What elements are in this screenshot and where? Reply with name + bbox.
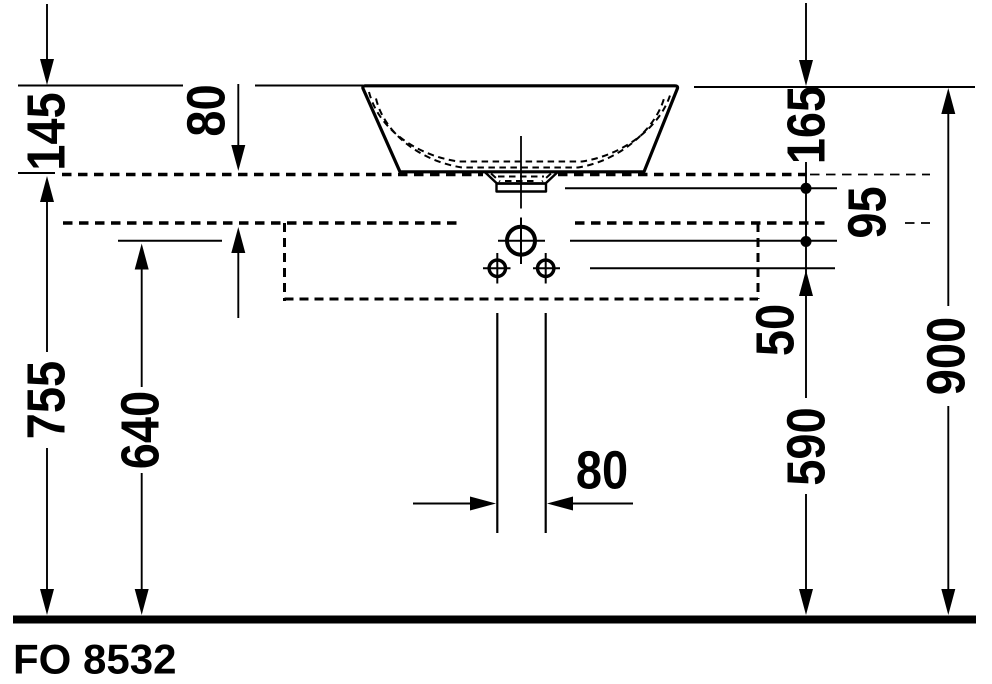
arrowhead-down-165 [799, 60, 813, 86]
arrowhead-up-640 [135, 244, 149, 270]
arrowhead-down-590-floor [799, 589, 813, 615]
technical-drawing-page: 145 80 755 640 165 95 50 590 900 80 FO 8… [0, 0, 992, 684]
dimension-labels: 145 80 755 640 165 95 50 590 900 80 [16, 84, 977, 500]
arrowhead-left-80-pipe [547, 497, 573, 511]
arrowhead-up-755 [40, 176, 54, 202]
arrowhead-up-590 [799, 270, 813, 296]
measure-dot-upper [801, 183, 812, 194]
measure-dot-lower [801, 236, 812, 247]
dim-label-640: 640 [110, 391, 171, 469]
arrowhead-right-80-pipe [470, 497, 496, 511]
drain-pipe [497, 313, 545, 533]
dim-label-165: 165 [776, 86, 837, 164]
dim-label-95: 95 [837, 186, 898, 238]
dim-label-900: 900 [916, 317, 977, 395]
arrowhead-up-counter-underside [231, 227, 245, 253]
dim-label-80-pipe: 80 [576, 440, 628, 501]
reference-lines [13, 86, 976, 620]
dim-label-145: 145 [16, 92, 77, 170]
arrowhead-down-145 [40, 59, 54, 85]
washbasin-installation-drawing: 145 80 755 640 165 95 50 590 900 80 FO 8… [0, 0, 992, 684]
dim-label-50: 50 [745, 304, 806, 356]
dim-label-590: 590 [776, 407, 837, 485]
product-code: FO 8532 [13, 636, 176, 683]
dim-label-80-rim: 80 [176, 84, 237, 136]
arrowhead-down-640-floor [135, 589, 149, 615]
basin-bowl-outer-dashed [369, 92, 671, 162]
basin-bowl-inner-dashed [376, 99, 664, 168]
arrowhead-down-900-floor [941, 589, 955, 615]
arrowhead-up-900 [941, 88, 955, 114]
dim-label-755: 755 [16, 361, 77, 439]
arrowhead-down-80-rim [231, 145, 245, 171]
arrowhead-down-755-floor [40, 589, 54, 615]
